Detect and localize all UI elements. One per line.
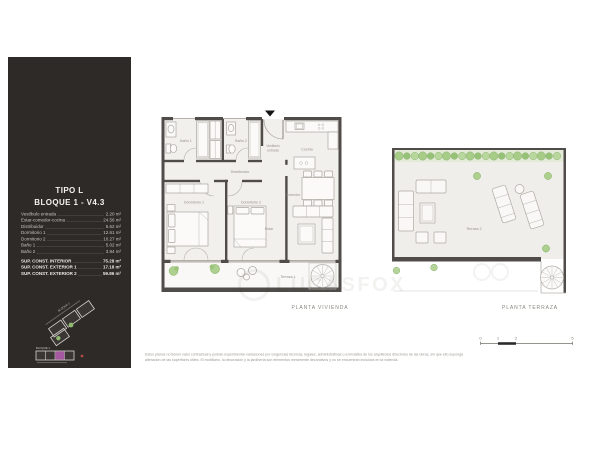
area-row: Estar-comedor-cocina24.56 m² <box>21 218 121 223</box>
area-label: Estar-comedor-cocina <box>21 218 65 223</box>
area-value: 2.20 m² <box>106 212 121 217</box>
area-label: Baño 2 <box>21 249 35 254</box>
area-value: 24.56 m² <box>103 218 121 223</box>
area-row: Baño 15.02 m² <box>21 243 121 248</box>
area-label: Dormitorio 1 <box>21 231 46 236</box>
disclaimer-line2: alteración de las superficies útiles. El… <box>145 358 577 364</box>
street-blocks <box>45 296 94 337</box>
unit-type: TIPO L <box>8 185 131 197</box>
block2-label: BLOQUE 2 <box>57 301 71 313</box>
room-label: entrada <box>267 149 278 153</box>
total-value: 17.18 m² <box>103 265 121 270</box>
area-value: 3.84 m² <box>106 249 121 254</box>
area-value: 10.27 m² <box>103 237 121 242</box>
area-value: 5.62 m² <box>106 224 121 229</box>
area-value: 5.02 m² <box>106 243 121 248</box>
total-label: SUP. CONST. INTERIOR <box>21 259 71 264</box>
leader-dots <box>78 275 101 276</box>
location-dot-icon <box>81 355 84 358</box>
area-row: Vestíbulo entrada2.20 m² <box>21 212 121 217</box>
room-label: Baño 2 <box>235 139 247 143</box>
total-row: SUP. CONST. EXTERIOR 117.18 m² <box>21 265 121 270</box>
leader-dots <box>47 240 102 241</box>
leader-dots <box>37 247 104 248</box>
total-label: SUP. CONST. EXTERIOR 1 <box>21 265 77 270</box>
watermark-text: LUCASFOX <box>276 274 406 297</box>
scale-tick: 5 <box>571 336 574 341</box>
caption-planta-terraza: PLANTA TERRAZA <box>470 305 590 311</box>
area-row: Distribuidor5.62 m² <box>21 224 121 229</box>
street-caption <box>37 362 67 363</box>
area-list: Vestíbulo entrada2.20 m² Estar-comedor-c… <box>21 212 121 254</box>
disclaimer: Estos planos no tienen valor contractual… <box>145 352 577 368</box>
area-label: Dormitorio 2 <box>21 237 46 242</box>
plan-sheet: TIPO L BLOQUE 1 - V4.3 Vestíbulo entrada… <box>0 0 600 450</box>
room-label: Comedor <box>286 193 301 197</box>
floorplan-terraza: Terraza 2 <box>385 140 575 300</box>
scale-tick: 1 <box>497 336 500 341</box>
area-row: Dormitorio 210.27 m² <box>21 237 121 242</box>
watermark-lucasfox: LUCASFOX <box>238 269 406 301</box>
scale-ticks: 0 1 2 5 <box>479 336 574 341</box>
room-label: Terraza 2 <box>466 227 481 231</box>
area-row: Baño 23.84 m² <box>21 249 121 254</box>
total-value: 75.28 m² <box>103 259 121 264</box>
unit-title: TIPO L BLOQUE 1 - V4.3 <box>8 185 131 209</box>
leader-dots <box>78 269 101 270</box>
block1-strip <box>36 351 74 360</box>
sidebar: TIPO L BLOQUE 1 - V4.3 Vestíbulo entrada… <box>8 57 131 368</box>
leader-dots <box>45 228 104 229</box>
block1-label: BLOQUE 1 <box>36 346 50 350</box>
caption-planta-vivienda: PLANTA VIVIENDA <box>260 305 380 311</box>
room-label: Dormitorio 1 <box>184 201 204 205</box>
scale-tick: 0 <box>479 336 482 341</box>
entry-arrow-icon <box>265 111 275 117</box>
total-label: SUP. CONST. EXTERIOR 2 <box>21 271 77 276</box>
leader-dots <box>67 222 102 223</box>
total-row: SUP. CONST. EXTERIOR 259.86 m² <box>21 271 121 276</box>
leader-dots <box>37 253 104 254</box>
room-label: Baño 1 <box>180 139 192 143</box>
area-label: Baño 1 <box>21 243 35 248</box>
site-minimap: BLOQUE 2 BLOQUE 1 <box>22 295 117 365</box>
room-label: Distribuidor <box>231 170 250 174</box>
leader-dots <box>47 234 102 235</box>
room-label: Dormitorio 2 <box>241 201 261 205</box>
watermark-ghost <box>474 264 508 280</box>
total-row: SUP. CONST. INTERIOR75.28 m² <box>21 259 121 264</box>
total-value: 59.86 m² <box>103 271 121 276</box>
lucasfox-logo-icon <box>238 269 270 301</box>
totals-list: SUP. CONST. INTERIOR75.28 m² SUP. CONST.… <box>21 259 121 276</box>
scale-bar: 0 1 2 5 <box>477 334 577 348</box>
highlighted-unit <box>55 351 64 359</box>
spiral-stair <box>541 266 564 289</box>
scale-tick: 2 <box>515 336 518 341</box>
area-row: Dormitorio 112.61 m² <box>21 231 121 236</box>
area-label: Vestíbulo entrada <box>21 212 56 217</box>
hedge-plants <box>395 152 561 160</box>
unit-block-version: BLOQUE 1 - V4.3 <box>8 197 131 209</box>
pool-icon <box>69 323 74 328</box>
area-value: 12.61 m² <box>103 231 121 236</box>
area-label: Distribuidor <box>21 224 44 229</box>
room-label: Vestíbulo <box>266 144 280 148</box>
room-label: Cocina <box>301 148 313 152</box>
leader-dots <box>73 262 102 263</box>
room-label: Estar <box>265 227 274 231</box>
leader-dots <box>58 215 105 216</box>
